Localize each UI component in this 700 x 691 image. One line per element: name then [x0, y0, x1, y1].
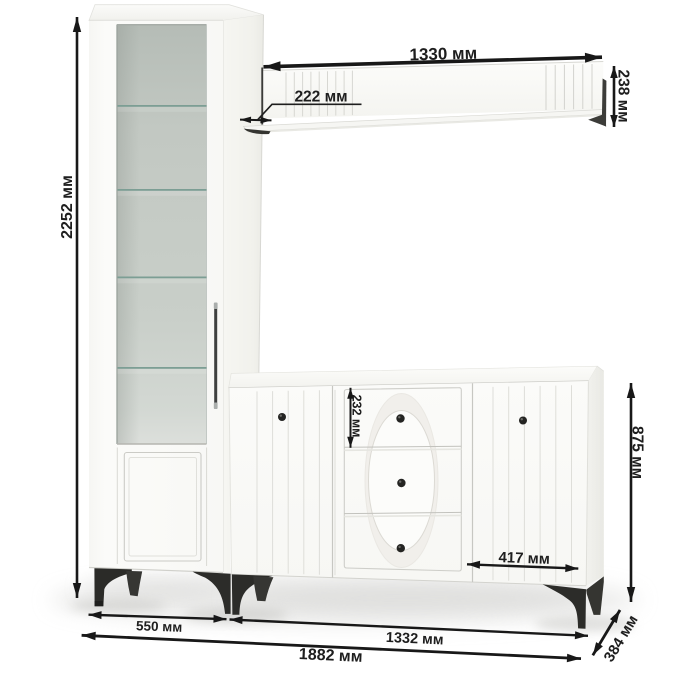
svg-text:1330 мм: 1330 мм: [409, 44, 477, 65]
svg-text:232 мм: 232 мм: [350, 395, 364, 438]
svg-text:238 мм: 238 мм: [615, 69, 632, 122]
svg-text:1332 мм: 1332 мм: [385, 630, 443, 649]
svg-text:550 мм: 550 мм: [136, 618, 183, 635]
svg-text:875 мм: 875 мм: [629, 426, 646, 479]
svg-text:2252 мм: 2252 мм: [59, 175, 76, 239]
svg-text:222 мм: 222 мм: [294, 88, 347, 105]
svg-text:1882 мм: 1882 мм: [298, 646, 362, 666]
svg-text:417 мм: 417 мм: [498, 549, 550, 568]
